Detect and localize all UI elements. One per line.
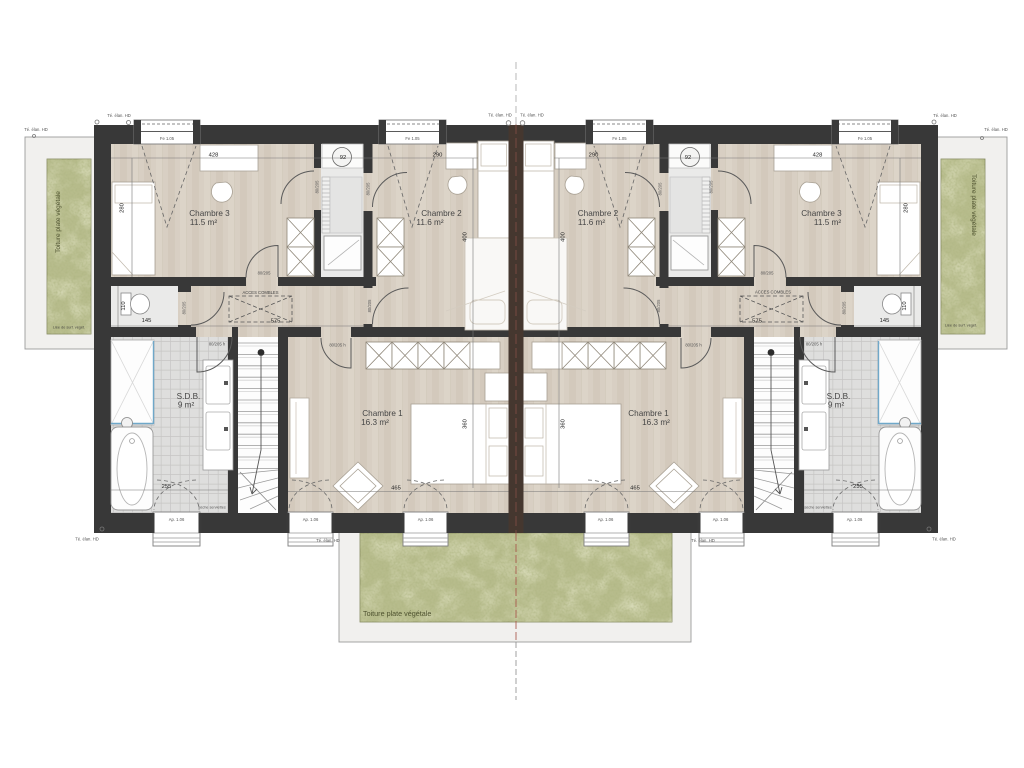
svg-text:Fe 1.05: Fe 1.05 — [612, 136, 627, 141]
svg-text:11.6 m²: 11.6 m² — [416, 218, 443, 227]
svg-text:110: 110 — [902, 301, 908, 310]
svg-text:80/205: 80/205 — [367, 299, 372, 312]
svg-text:Chambre 2: Chambre 2 — [421, 209, 462, 218]
svg-text:Toiture plate végétale: Toiture plate végétale — [970, 174, 977, 236]
svg-text:80/205 h: 80/205 h — [329, 343, 346, 348]
svg-text:Ap. 1.06: Ap. 1.06 — [847, 517, 863, 522]
svg-text:92: 92 — [685, 155, 691, 161]
svg-text:Toiture plate végétale: Toiture plate végétale — [55, 191, 62, 253]
svg-text:400: 400 — [463, 232, 469, 242]
svg-text:80/205: 80/205 — [658, 182, 663, 195]
svg-text:360: 360 — [561, 419, 567, 429]
svg-text:Té. élan. HD: Té. élan. HD — [316, 538, 340, 543]
svg-text:Ap. 1.06: Ap. 1.06 — [169, 517, 185, 522]
svg-text:280: 280 — [120, 203, 126, 213]
svg-text:ACCES COMBLES: ACCES COMBLES — [242, 290, 278, 295]
svg-text:16.3 m²: 16.3 m² — [361, 418, 389, 427]
svg-text:sèche serviettes: sèche serviettes — [804, 506, 832, 510]
svg-text:92: 92 — [340, 155, 346, 161]
svg-text:11.6 m²: 11.6 m² — [578, 218, 605, 227]
svg-text:465: 465 — [391, 486, 401, 492]
svg-text:Fe 1.05: Fe 1.05 — [405, 136, 420, 141]
svg-text:80/205: 80/205 — [842, 301, 847, 314]
svg-text:400: 400 — [561, 232, 567, 242]
svg-text:Té. élan. HD: Té. élan. HD — [107, 113, 131, 118]
svg-text:Chambre 3: Chambre 3 — [189, 209, 230, 218]
svg-text:Té. élan. HD: Té. élan. HD — [932, 537, 956, 542]
svg-text:290: 290 — [433, 153, 443, 159]
svg-text:11.5 m²: 11.5 m² — [190, 218, 217, 227]
svg-text:Liée de surf. végét.: Liée de surf. végét. — [945, 324, 977, 328]
svg-text:Chambre 1: Chambre 1 — [362, 409, 403, 418]
svg-text:9 m²: 9 m² — [828, 401, 845, 410]
svg-text:Toiture plate végétale: Toiture plate végétale — [363, 609, 431, 618]
svg-text:Chambre 2: Chambre 2 — [578, 209, 619, 218]
svg-text:575: 575 — [271, 319, 281, 325]
svg-text:Té. élan. HD: Té. élan. HD — [24, 127, 48, 132]
svg-text:Ap. 1.06: Ap. 1.06 — [418, 517, 434, 522]
svg-text:575: 575 — [752, 319, 762, 325]
svg-text:80/205: 80/205 — [709, 180, 714, 193]
svg-text:80/205 h: 80/205 h — [209, 342, 226, 347]
svg-text:80/205: 80/205 — [761, 271, 774, 276]
svg-text:Fe 1.05: Fe 1.05 — [160, 136, 175, 141]
svg-text:Té. élan. HD: Té. élan. HD — [520, 113, 544, 118]
svg-text:280: 280 — [904, 203, 910, 213]
svg-text:Fe 1.05: Fe 1.05 — [858, 136, 873, 141]
svg-text:145: 145 — [880, 318, 890, 324]
svg-text:80/205: 80/205 — [656, 299, 661, 312]
svg-text:16.3 m²: 16.3 m² — [642, 418, 670, 427]
svg-text:290: 290 — [589, 153, 599, 159]
svg-text:Ap. 1.06: Ap. 1.06 — [598, 517, 614, 522]
svg-text:Té. élan. HD: Té. élan. HD — [75, 537, 99, 542]
svg-text:80/205: 80/205 — [315, 180, 320, 193]
svg-text:428: 428 — [813, 153, 823, 159]
svg-text:Chambre 3: Chambre 3 — [801, 209, 842, 218]
svg-text:80/205: 80/205 — [258, 271, 271, 276]
svg-text:255: 255 — [853, 484, 863, 490]
svg-text:80/205: 80/205 — [366, 182, 371, 195]
svg-text:360: 360 — [463, 419, 469, 429]
svg-text:sèche serviettes: sèche serviettes — [198, 506, 226, 510]
svg-text:465: 465 — [630, 486, 640, 492]
svg-text:80/205: 80/205 — [182, 301, 187, 314]
svg-text:Ap. 1.06: Ap. 1.06 — [713, 517, 729, 522]
svg-text:80/205 h: 80/205 h — [685, 343, 702, 348]
svg-text:145: 145 — [142, 318, 152, 324]
svg-text:Liée de surf. végét.: Liée de surf. végét. — [53, 326, 85, 330]
svg-text:Té. élan. HD: Té. élan. HD — [933, 113, 957, 118]
svg-text:428: 428 — [209, 153, 219, 159]
svg-text:Té. élan. HD: Té. élan. HD — [984, 127, 1008, 132]
svg-text:Ap. 1.06: Ap. 1.06 — [303, 517, 319, 522]
svg-text:255: 255 — [162, 484, 172, 490]
svg-text:110: 110 — [121, 301, 127, 310]
svg-text:Chambre 1: Chambre 1 — [628, 409, 669, 418]
svg-text:9 m²: 9 m² — [178, 401, 195, 410]
svg-text:Té. élan. HD: Té. élan. HD — [488, 113, 512, 118]
svg-text:ACCES COMBLES: ACCES COMBLES — [755, 290, 791, 295]
svg-text:11.5 m²: 11.5 m² — [814, 218, 841, 227]
svg-text:80/205 h: 80/205 h — [806, 342, 823, 347]
svg-text:Té. élan. HD: Té. élan. HD — [691, 538, 715, 543]
